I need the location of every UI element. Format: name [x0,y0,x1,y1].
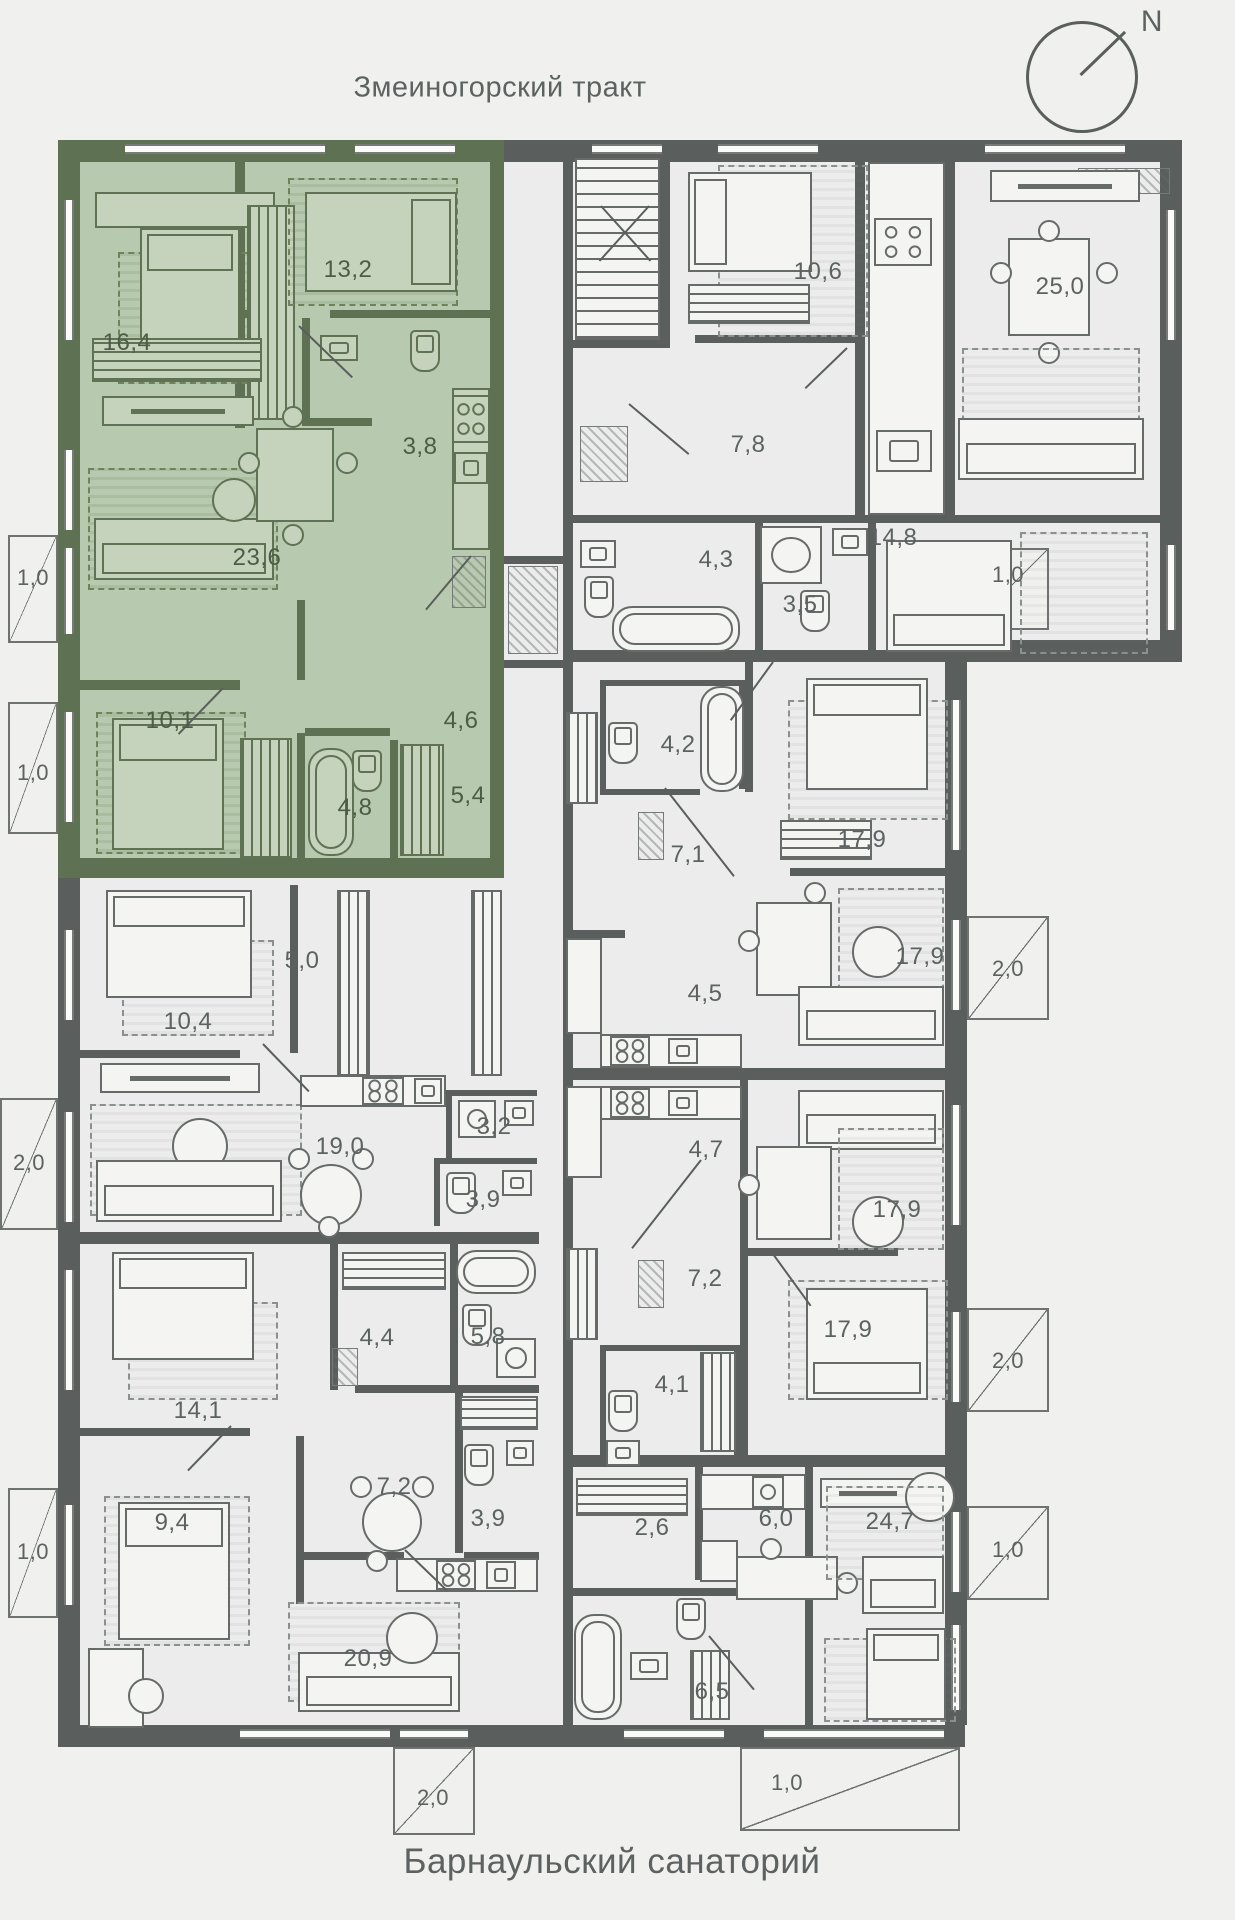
stove [610,1036,650,1066]
wall-highlight [305,728,390,736]
wardrobe [460,1396,538,1430]
area-label-wardrobe: 5,4 [451,782,486,810]
wall-highlight [490,162,504,858]
kitchen-sink [668,1090,698,1116]
entry-mat [452,556,486,608]
chair [990,262,1012,284]
chair [760,1538,782,1560]
floor-plan: Змеиногорский тракт Барнаульский санатор… [0,0,1235,1920]
sink [832,528,868,556]
bed [112,718,224,850]
sofa [798,986,944,1046]
wall-highlight [58,858,504,878]
sink [502,1170,532,1196]
chair [804,882,826,904]
area-label-bedroom: 16,4 [103,329,152,357]
kitchen-sink [414,1078,442,1104]
balcony-door [951,1512,961,1592]
wall [446,1090,537,1096]
area-label-wc: 3,2 [477,1113,512,1141]
bathtub [612,606,740,652]
area-label-bathroom: 4,3 [699,546,734,574]
chair [1096,262,1118,284]
entry-mat [638,812,664,860]
area-label-bathroom: 5,8 [471,1323,506,1351]
area-label-balcony: 2,0 [992,1348,1024,1374]
chair [1038,220,1060,242]
area-label-balcony: 2,0 [13,1150,45,1176]
sofa [96,1160,282,1222]
wall-highlight [80,680,240,690]
balcony-door [400,1729,468,1739]
area-label-hall: 2,6 [635,1514,670,1542]
chair [366,1550,388,1572]
wall [565,1068,960,1080]
window [1166,210,1176,340]
area-label-bedroom: 17,9 [838,826,887,854]
wardrobe [337,890,370,1076]
stove [362,1077,404,1105]
area-label-balcony: 2,0 [992,956,1024,982]
window [624,1729,724,1739]
window [125,144,325,154]
pouf [386,1612,438,1664]
tv-stand [990,170,1140,202]
rug [1020,532,1148,654]
sofa [862,1556,944,1614]
area-label-hall: 7,8 [731,431,766,459]
bed [806,1288,928,1400]
toilet [410,330,440,372]
kitchen-counter [700,1540,738,1582]
area-label-bedroom: 10,6 [794,258,843,286]
window [64,1270,74,1390]
wall-highlight [390,740,398,858]
wall-highlight [297,733,305,858]
balcony-door [64,712,74,822]
wall [790,868,945,876]
sink [320,335,358,361]
area-label-kitchen: 6,0 [759,1505,794,1533]
oven [752,1476,784,1508]
chair [350,1476,372,1498]
stove [452,395,490,443]
area-label-bedroom: 10,1 [146,707,195,735]
toilet [584,576,614,618]
elevator-shaft [508,566,558,654]
wall [600,680,606,795]
window [355,144,455,154]
wall [434,1164,440,1226]
area-label-balcony: 2,0 [417,1785,449,1811]
dining-table [756,902,832,996]
area-label-hall: 7,2 [688,1265,723,1293]
wall [600,789,700,795]
toilet [464,1444,494,1486]
stove [874,218,932,266]
compass-icon [1026,21,1138,133]
wardrobe [400,744,444,856]
shower [760,526,822,584]
balcony-door [64,548,74,634]
area-label-living: 23,6 [233,544,282,572]
window [240,1729,390,1739]
wall [504,556,563,564]
area-label-living: 17,9 [873,1196,922,1224]
area-label-living: 17,9 [896,943,945,971]
kitchen-sink [454,452,488,484]
bed [886,540,1012,652]
area-label-living: 20,9 [344,1645,393,1673]
chair [238,452,260,474]
bathtub [456,1250,536,1294]
window [64,450,74,530]
wardrobe [471,890,502,1076]
wall [446,1090,452,1164]
entry-mat [638,1260,664,1308]
fridge [566,938,602,1034]
wall [434,1158,537,1164]
toilet [352,750,382,792]
area-label-living: 25,0 [1036,273,1085,301]
wall [304,1552,404,1560]
wall [80,1232,539,1244]
area-label-bedroom: 14,8 [869,524,918,552]
wall [600,1345,740,1351]
tv-stand [102,396,254,426]
wall [740,1256,748,1455]
bed [112,1252,254,1360]
area-label-balcony: 1,0 [992,1537,1024,1563]
bathtub [574,1614,622,1720]
kitchen-sink [486,1561,516,1589]
toilet [676,1598,706,1640]
chair [128,1678,164,1714]
sink [606,1440,640,1466]
wardrobe [566,712,598,804]
place-label: Барнаульский санаторий [404,1842,821,1882]
wall [571,340,670,348]
toilet [608,1390,638,1432]
area-label-bathroom: 6,5 [695,1678,730,1706]
wall [80,1050,240,1058]
area-label-living: 24,7 [866,1508,915,1536]
street-label: Змеиногорский тракт [353,72,646,105]
area-label-balcony: 1,0 [771,1770,803,1796]
bed [106,890,252,998]
wall [571,1588,746,1596]
dining-table [256,428,334,522]
chair [288,1148,310,1170]
window [985,144,1125,154]
wall-highlight [297,600,305,680]
wall [355,1385,539,1393]
area-label-hall: 7,2 [377,1473,412,1501]
wardrobe [342,1252,446,1290]
balcony-door [764,1729,944,1739]
wall [660,150,670,348]
window [1166,545,1176,630]
area-label-balcony: 1,0 [17,1539,49,1565]
area-label-hall: 5,0 [285,947,320,975]
kitchen-sink [668,1038,698,1064]
bed [688,172,812,272]
bed [806,678,928,790]
chair [318,1216,340,1238]
area-label-bathroom: 3,9 [471,1505,506,1533]
wall-highlight [302,418,372,426]
chair [412,1476,434,1498]
chair [282,524,304,546]
dining-table [362,1492,422,1552]
area-label-bathroom: 4,1 [655,1371,690,1399]
area-label-kitchen: 4,5 [688,980,723,1008]
sink [630,1652,668,1680]
entry-door [592,144,662,154]
wall [745,662,753,792]
wardrobe [566,1248,598,1340]
wall [296,1436,304,1604]
area-label-bedroom: 10,4 [164,1008,213,1036]
chair [282,406,304,428]
sink [580,540,616,568]
staircase [575,158,660,340]
area-label-bathroom: 4,8 [338,794,373,822]
tv-stand [100,1063,260,1093]
area-label-bedroom: 17,9 [824,1316,873,1344]
balcony-door [951,920,961,1010]
sofa [958,418,1144,480]
area-label-bathroom: 3,5 [783,591,818,619]
area-label-living: 19,0 [316,1133,365,1161]
window [64,200,74,340]
entry-mat [332,1348,358,1386]
balcony-door [951,1312,961,1402]
area-label-hall: 4,4 [360,1324,395,1352]
wall [875,515,1160,523]
chair [738,1174,760,1196]
area-label-bedroom: 14,1 [174,1397,223,1425]
wardrobe [688,284,810,324]
compass-north-label: N [1141,5,1163,39]
wardrobe [240,738,292,858]
balcony-door [64,1112,74,1222]
balcony-door [64,1505,74,1605]
area-label-bedroom: 13,2 [324,256,373,284]
wardrobe [700,1352,736,1452]
area-label-bathroom: 4,2 [661,731,696,759]
dining-table [736,1556,838,1600]
area-label-balcony: 1,0 [17,565,49,591]
area-label-balcony: 1,0 [992,562,1024,588]
wall [571,515,875,523]
wall-highlight [330,310,490,318]
window [718,144,818,154]
bathtub [700,686,744,792]
kitchen-sink [876,430,932,472]
area-label-hall: 7,1 [671,841,706,869]
wardrobe [576,1478,688,1516]
area-label-bathroom: 3,9 [466,1186,501,1214]
area-label-bathroom: 3,8 [403,433,438,461]
area-label-balcony: 1,0 [17,760,49,786]
chair [336,452,358,474]
wall [565,930,625,938]
area-label-bedroom: 9,4 [155,1509,190,1537]
window [64,930,74,1020]
area-label-hallway: 4,6 [444,707,479,735]
chair [738,930,760,952]
window [951,1105,961,1225]
dining-table [756,1146,832,1240]
fridge [566,1086,602,1178]
window [951,700,961,850]
area-label-kitchen: 4,7 [689,1136,724,1164]
wall [945,162,955,515]
pouf [212,478,256,522]
sink [506,1440,534,1466]
wall [504,660,563,668]
toilet [608,722,638,764]
entry-mat [580,426,628,482]
bed [866,1628,946,1720]
stove [610,1088,650,1118]
